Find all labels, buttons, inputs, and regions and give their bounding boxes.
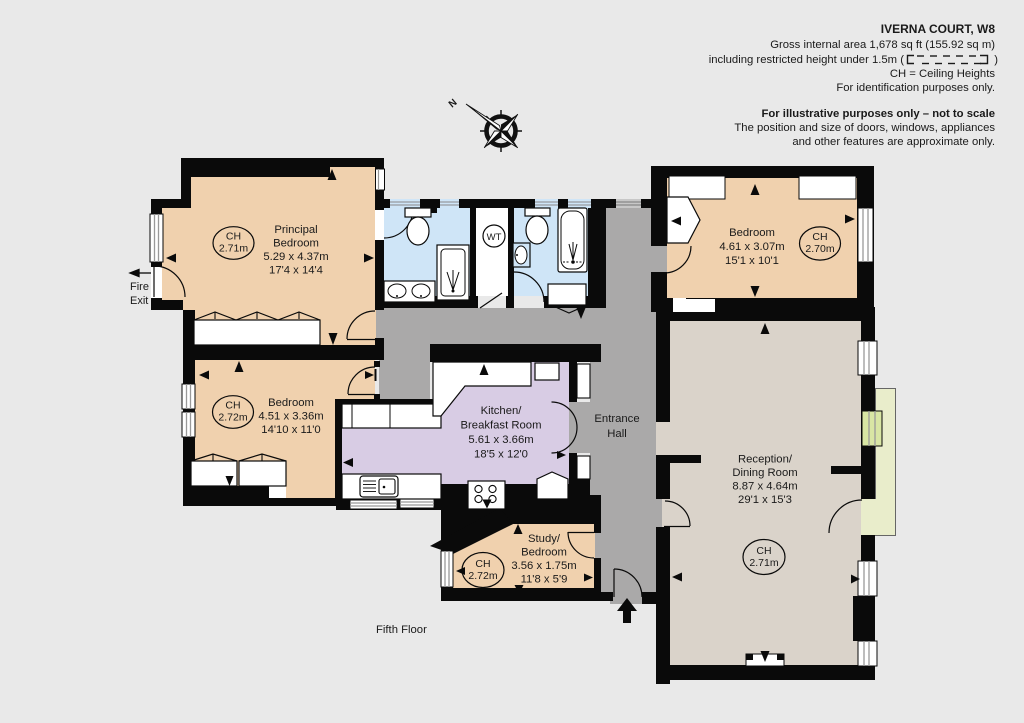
svg-text:8.87 x 4.64m: 8.87 x 4.64m [732,481,797,493]
svg-text:5.29 x 4.37m: 5.29 x 4.37m [263,251,328,263]
svg-text:Bedroom: Bedroom [273,238,319,250]
svg-text:Exit: Exit [130,295,148,307]
svg-text:For illustrative purposes only: For illustrative purposes only – not to … [761,108,995,120]
svg-text:CH = Ceiling Heights: CH = Ceiling Heights [890,68,996,80]
svg-text:29'1 x 15'3: 29'1 x 15'3 [738,494,792,506]
svg-text:Breakfast Room: Breakfast Room [461,420,542,432]
svg-text:5.61 x 3.66m: 5.61 x 3.66m [468,434,533,446]
svg-text:2.70m: 2.70m [805,243,834,255]
svg-text:For identification purposes on: For identification purposes only. [836,82,995,94]
svg-text:The position and size of doors: The position and size of doors, windows,… [734,122,995,134]
svg-text:Gross internal area 1,678 sq f: Gross internal area 1,678 sq ft (155.92 … [770,39,995,51]
svg-text:CH: CH [812,231,827,243]
svg-text:2.71m: 2.71m [749,557,778,569]
svg-text:CH: CH [475,558,490,570]
svg-text:18'5 x 12'0: 18'5 x 12'0 [474,449,528,461]
svg-text:CH: CH [756,545,771,557]
svg-text:WT: WT [487,232,502,243]
svg-text:Hall: Hall [607,428,626,440]
svg-text:Bedroom: Bedroom [729,227,775,239]
svg-text:2.71m: 2.71m [219,243,248,255]
svg-text:Study/: Study/ [528,533,561,545]
svg-text:and other features are approxi: and other features are approximate only. [792,136,995,148]
svg-text:including restricted height un: including restricted height under 1.5m ( [709,54,905,66]
svg-text:3.56 x 1.75m: 3.56 x 1.75m [511,560,576,572]
svg-text:15'1 x 10'1: 15'1 x 10'1 [725,255,779,267]
svg-text:IVERNA COURT, W8: IVERNA COURT, W8 [881,22,996,36]
svg-text:Reception/: Reception/ [738,454,793,466]
svg-text:4.51 x 3.36m: 4.51 x 3.36m [258,411,323,423]
svg-text:CH: CH [226,231,241,243]
svg-text:Bedroom: Bedroom [521,547,567,559]
svg-text:Entrance: Entrance [594,413,639,425]
svg-text:): ) [994,54,998,66]
svg-text:Bedroom: Bedroom [268,397,314,409]
svg-text:14'10 x 11'0: 14'10 x 11'0 [261,424,320,436]
svg-text:11'8 x 5'9: 11'8 x 5'9 [521,574,568,586]
svg-text:Kitchen/: Kitchen/ [481,405,523,417]
svg-text:CH: CH [225,400,240,412]
svg-text:4.61 x 3.07m: 4.61 x 3.07m [719,241,784,253]
svg-text:2.72m: 2.72m [468,570,497,582]
svg-text:Fifth Floor: Fifth Floor [376,624,427,636]
svg-text:17'4 x 14'4: 17'4 x 14'4 [269,265,323,277]
svg-text:2.72m: 2.72m [218,412,247,424]
svg-text:Fire: Fire [130,281,149,293]
svg-text:Dining Room: Dining Room [732,467,797,479]
svg-text:Principal: Principal [274,224,317,236]
